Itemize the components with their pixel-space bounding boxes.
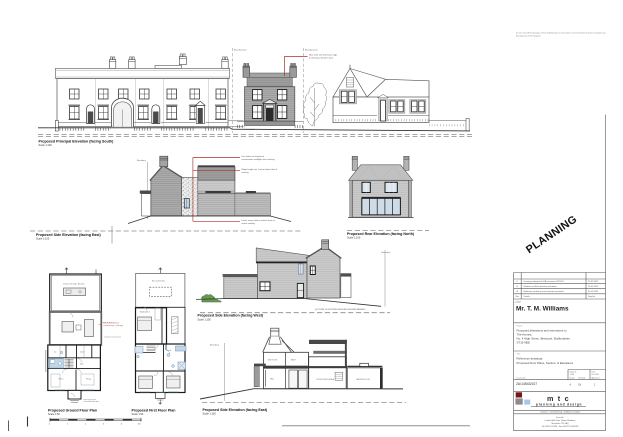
svg-text:Scale 1:100: Scale 1:100 [198, 318, 212, 321]
svg-text:(OUTLINE OF EXISTING BUILDING: (OUTLINE OF EXISTING BUILDING SHOWN DASH… [315, 308, 366, 311]
svg-text:Reference drawings:: Reference drawings: [517, 357, 544, 361]
svg-text:Drawings adapted to LPA commen: Drawings adapted to LPA comments 2023-24 [524, 280, 565, 283]
svg-text:5m: 5m [138, 424, 141, 426]
svg-text:planning and design: planning and design [536, 403, 582, 407]
svg-text:Rev: Rev [516, 296, 520, 298]
svg-text:Living / Dining / Kitchen: Living / Dining / Kitchen [63, 283, 86, 286]
svg-text:Tel 01952 123 456 - Fax 0195: Tel 01952 123 456 - Fax 01952 123 456789 [542, 426, 579, 428]
svg-text:LIVING/DINING AREA: LIVING/DINING AREA [316, 378, 335, 381]
svg-text:Dean Ho: Dean Ho [556, 417, 563, 419]
svg-text:Scale 1:100: Scale 1:100 [203, 413, 217, 416]
svg-text:Do not scale off this drawing.: Do not scale off this drawing. Check all… [516, 32, 605, 35]
svg-text:Lawford Hall Farm, Hatton Mead: Lawford Hall Farm, Hatton Meadows [545, 419, 576, 422]
svg-text:Proposed Side Elevation (facin: Proposed Side Elevation (facing East) [36, 233, 102, 237]
svg-text:existing wall retained: existing wall retained [104, 336, 121, 339]
svg-text:architect - town planning -: architect - town planning - building sur… [540, 411, 579, 414]
svg-text:conservatory + garage): conservatory + garage) [104, 324, 124, 327]
svg-text:Mr. T. M. Williams: Mr. T. M. Williams [516, 306, 569, 313]
svg-text:wc: wc [54, 351, 57, 353]
svg-text:Windows to West elevation amen: Windows to West elevation amended [524, 285, 557, 288]
svg-text:Checked: Checked [578, 378, 585, 380]
svg-text:Approved: Approved [592, 377, 600, 380]
svg-text:Title:: Title: [517, 353, 521, 356]
svg-text:hall: hall [80, 364, 84, 366]
svg-text:Scale 1:50: Scale 1:50 [48, 413, 60, 416]
svg-text:Ridge height min 1 metre below: Ridge height min 1 metre below that of [242, 168, 278, 171]
svg-text:discrepancies to the designer.: discrepancies to the designer. [516, 34, 541, 37]
svg-text:ST19 9BD: ST19 9BD [517, 340, 530, 344]
svg-text:Boundary: Boundary [382, 251, 392, 254]
svg-text:HALL: HALL [270, 378, 275, 381]
svg-text:Boundary line: Boundary line [305, 49, 319, 52]
svg-text:Proposed Principal Elevation (: Proposed Principal Elevation (facing Sou… [39, 140, 115, 144]
svg-text:existing: existing [242, 171, 250, 174]
svg-text:Project:: Project: [517, 324, 524, 327]
svg-text:relocated front door: relocated front door [84, 400, 100, 403]
svg-text:& chimneys rebuilt in brick: & chimneys rebuilt in brick [309, 56, 334, 59]
svg-text:2A/14543/107: 2A/14543/107 [516, 382, 537, 386]
svg-text:Bathroom window to east elevat: Bathroom window to east elevation amende… [524, 290, 564, 293]
svg-text:Drawing No.: Drawing No. [516, 377, 526, 379]
svg-text:Use timber or aluminium: Use timber or aluminium [242, 155, 265, 158]
svg-text:Scale 1:100: Scale 1:100 [347, 237, 361, 240]
svg-text:Office: Office [58, 379, 64, 381]
svg-text:Scale 1:100: Scale 1:100 [36, 237, 50, 240]
svg-text:Boundary: Boundary [210, 344, 220, 347]
svg-text:1:100: 1:100 [570, 374, 575, 376]
svg-text:Date/Int: Date/Int [588, 295, 595, 298]
svg-text:Drawn: Drawn [570, 378, 575, 380]
svg-text:Lower storey clad in natural s: Lower storey clad in natural stone to [242, 219, 276, 222]
svg-text:GARDEN ROOM: GARDEN ROOM [356, 378, 370, 381]
svg-text:BATH: BATH [291, 358, 296, 361]
svg-text:13-01-2025: 13-01-2025 [588, 286, 599, 288]
svg-text:Proposed Side Elevation (facin: Proposed Side Elevation (facing West) [198, 314, 264, 318]
svg-text:Boundary: Boundary [137, 159, 147, 162]
svg-text:Client:: Client: [516, 300, 522, 303]
svg-text:Details: Details [524, 295, 530, 298]
svg-text:conservation rooflights over e: conservation rooflights over existing [242, 158, 276, 161]
svg-text:flat roof below: flat roof below [152, 280, 165, 283]
svg-text:Proposed Floor Plans, Section,: Proposed Floor Plans, Section, & Elevati… [517, 361, 574, 365]
svg-text:Oct 2024: Oct 2024 [592, 373, 599, 376]
svg-text:match existing: match existing [242, 222, 256, 225]
svg-text:Scale 1:50: Scale 1:50 [132, 413, 144, 416]
svg-text:(demolish existing: (demolish existing [104, 321, 119, 324]
svg-text:BEDROOM: BEDROOM [268, 359, 278, 361]
svg-text:Boundary line: Boundary line [234, 49, 248, 52]
svg-text:Snug: Snug [86, 379, 92, 381]
svg-text:Scale 1:100: Scale 1:100 [39, 144, 53, 147]
svg-text:Proposed Rear Elevation (facin: Proposed Rear Elevation (facing North) [347, 232, 415, 236]
svg-text:22-01-2025: 22-01-2025 [588, 281, 599, 283]
svg-text:09-12-2024: 09-12-2024 [588, 291, 599, 293]
svg-text:Bedroom 1: Bedroom 1 [140, 311, 151, 314]
svg-text:Shropshire TF9 2AQ: Shropshire TF9 2AQ [551, 422, 569, 425]
svg-text:New slate roof with lower ridg: New slate roof with lower ridge [309, 54, 338, 57]
svg-text:Proposed Side Elevation (facin: Proposed Side Elevation (facing East) [203, 408, 269, 412]
